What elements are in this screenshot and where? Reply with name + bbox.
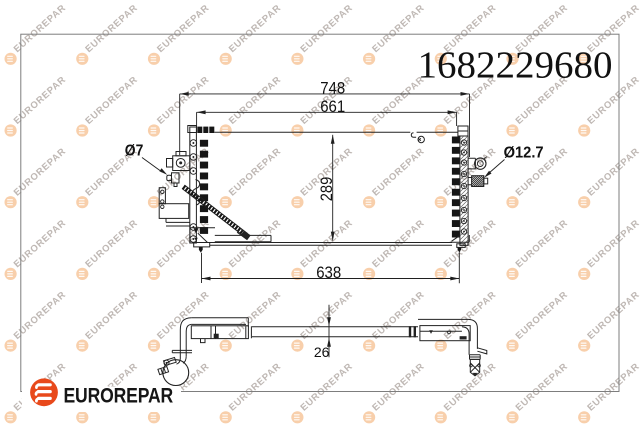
svg-text:Ø7: Ø7 (125, 143, 144, 160)
svg-text:26: 26 (314, 344, 330, 360)
svg-text:661: 661 (320, 98, 345, 116)
svg-text:1682229680: 1682229680 (418, 44, 613, 86)
svg-text:748: 748 (320, 79, 345, 97)
svg-text:638: 638 (316, 264, 341, 282)
svg-text:289: 289 (318, 177, 336, 202)
svg-text:EUROREPAR: EUROREPAR (64, 384, 174, 407)
svg-text:Ø12.7: Ø12.7 (504, 145, 544, 162)
